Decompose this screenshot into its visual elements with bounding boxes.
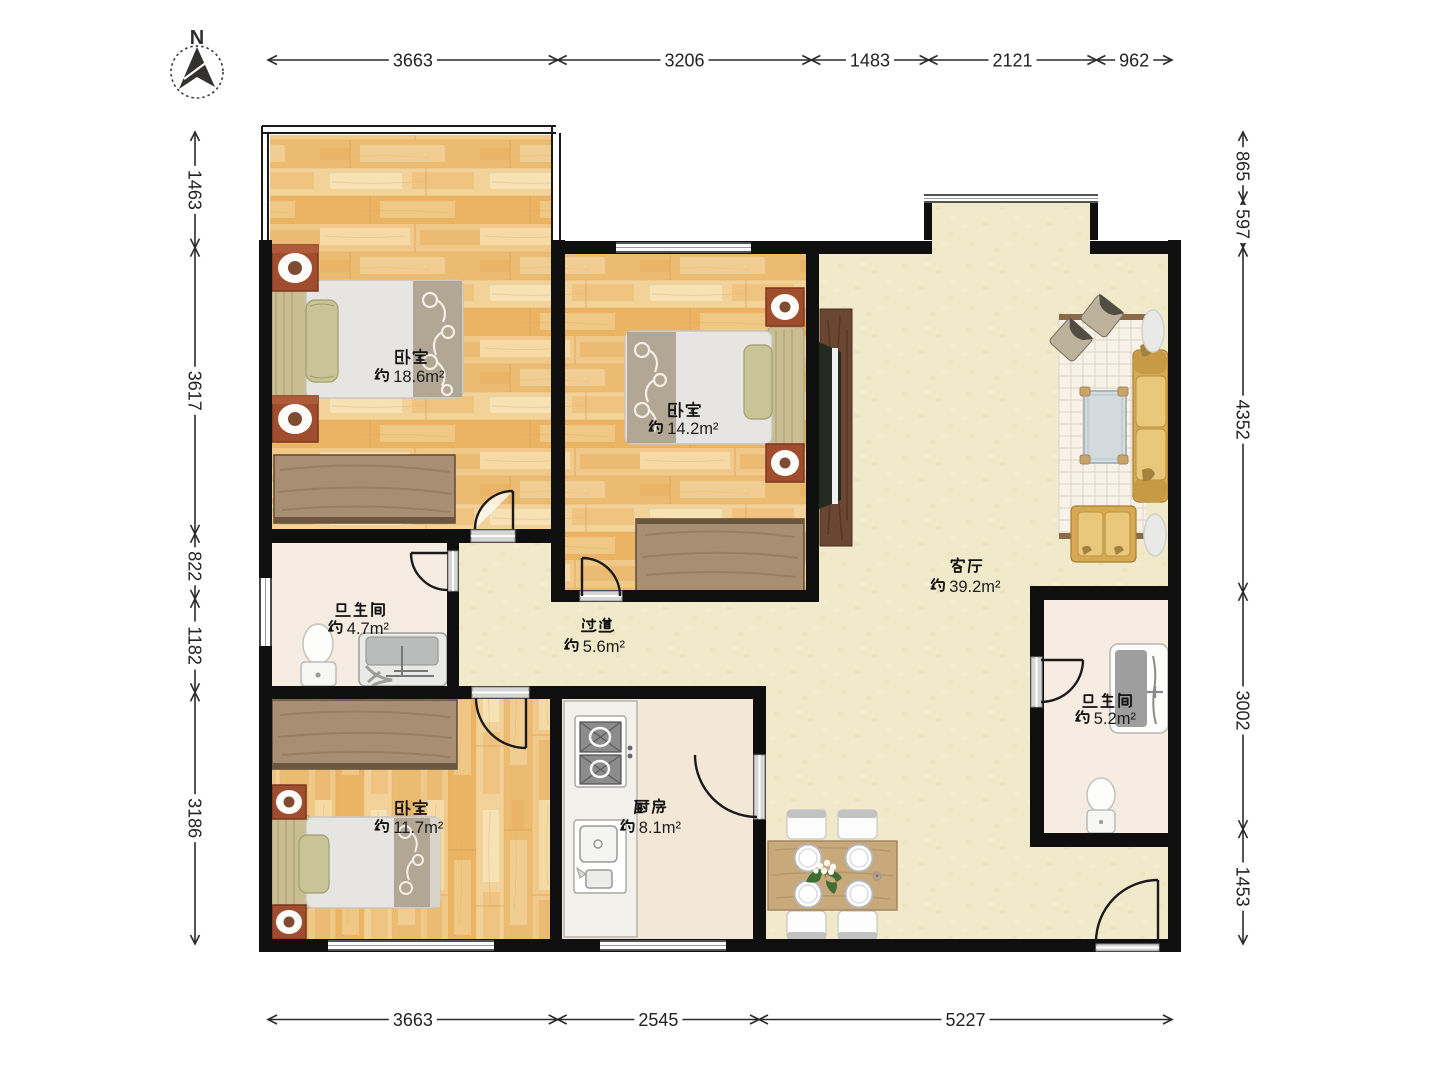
svg-text:3206: 3206	[664, 51, 704, 71]
svg-text:865: 865	[1233, 151, 1253, 181]
svg-text:3002: 3002	[1233, 690, 1253, 730]
svg-text:14.2m²: 14.2m²	[667, 420, 719, 438]
svg-text:962: 962	[1119, 51, 1149, 71]
svg-text:822: 822	[185, 551, 205, 581]
svg-text:2121: 2121	[992, 51, 1032, 71]
svg-text:3663: 3663	[393, 1010, 433, 1030]
svg-text:2545: 2545	[638, 1010, 678, 1030]
svg-text:3663: 3663	[393, 51, 433, 71]
svg-text:1182: 1182	[185, 626, 205, 665]
svg-text:5.6m²: 5.6m²	[583, 638, 626, 656]
svg-text:4.7m²: 4.7m²	[347, 620, 390, 638]
svg-text:11.7m²: 11.7m²	[393, 819, 444, 837]
svg-text:597: 597	[1233, 209, 1253, 239]
svg-text:1453: 1453	[1233, 867, 1253, 907]
svg-text:18.6m²: 18.6m²	[393, 368, 445, 386]
svg-text:39.2m²: 39.2m²	[949, 578, 1001, 596]
svg-text:1483: 1483	[850, 51, 890, 71]
svg-text:1463: 1463	[185, 170, 205, 210]
svg-text:5227: 5227	[945, 1010, 985, 1030]
svg-text:5.2m²: 5.2m²	[1094, 710, 1137, 728]
svg-text:4352: 4352	[1233, 400, 1253, 440]
svg-text:3186: 3186	[185, 798, 205, 838]
svg-text:3617: 3617	[185, 371, 205, 411]
svg-text:8.1m²: 8.1m²	[639, 819, 682, 837]
